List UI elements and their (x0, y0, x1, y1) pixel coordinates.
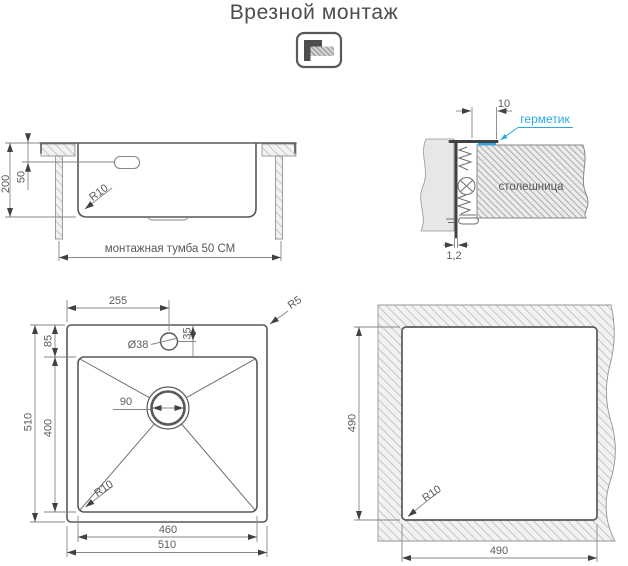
dim-faucet-35: 35 (178, 325, 196, 356)
overflow-hole (115, 157, 140, 169)
corner-radius-callout: R5 (270, 294, 304, 324)
technical-drawings: 200 50 R10 монтажная тумба 50 СМ (0, 0, 628, 566)
dim-12-label: 1,2 (446, 250, 461, 262)
dim-rim-85: 85 (42, 325, 76, 357)
dim-400-label: 400 (42, 419, 54, 437)
dim-85-label: 85 (42, 335, 54, 347)
dim-35-label: 35 (181, 327, 193, 339)
sink-bowl-outline (78, 143, 256, 217)
countertop-label: столешница (498, 181, 564, 193)
dim-490-bottom-label: 490 (490, 545, 508, 557)
top-view-drawing: 255 85 510 400 35 (22, 294, 304, 557)
dim-510-left-label: 510 (22, 413, 34, 431)
section-detail-drawing: 10 герметик столешница 1,2 (421, 98, 588, 262)
radius-callout-side: R10 (85, 182, 112, 209)
side-r10-label: R10 (87, 182, 110, 204)
dim-cabinet-width: монтажная тумба 50 СМ (59, 241, 281, 261)
dim-200-label: 200 (0, 175, 12, 193)
countertop-left-block (41, 144, 75, 156)
dim-490-left-label: 490 (346, 414, 358, 432)
dim-255-label: 255 (109, 295, 127, 307)
dim-10-label: 10 (498, 98, 510, 110)
side-view-part (40, 143, 296, 239)
countertop-right-block (262, 144, 296, 156)
dim-460-label: 460 (159, 524, 177, 536)
faucet-diameter-callout: Ø38 (128, 339, 176, 352)
cabinet-leg-left (56, 156, 63, 239)
sealant-label: герметик (520, 112, 570, 126)
icon-countertop-shape (311, 47, 335, 57)
dim-50-label: 50 (15, 171, 27, 183)
dim-flange-10: 10 (456, 98, 512, 139)
sink-wall-break-block (421, 139, 454, 231)
r5-label: R5 (286, 294, 304, 312)
cabinet-leg-right (276, 156, 283, 239)
cutout-drawing: 490 490 R10 (346, 305, 615, 562)
dim-thickness-12: 1,2 (443, 238, 469, 262)
faucet-dia-label: Ø38 (128, 339, 149, 351)
cabinet-width-label: монтажная тумба 50 СМ (105, 243, 236, 255)
flush-mount-icon (297, 33, 341, 67)
mounting-diagram-page: Врезной монтаж (0, 0, 628, 566)
drain-dia-label: 90 (120, 396, 132, 408)
top-r10-label: R10 (92, 478, 115, 499)
bowl-radius-callout: R10 (86, 478, 116, 507)
side-view-drawing: 200 50 R10 монтажная тумба 50 СМ (0, 137, 296, 262)
sealant-callout: герметик (501, 112, 574, 140)
dim-bowl-400: 400 (42, 357, 76, 512)
dim-510-bottom-label: 510 (158, 539, 176, 551)
